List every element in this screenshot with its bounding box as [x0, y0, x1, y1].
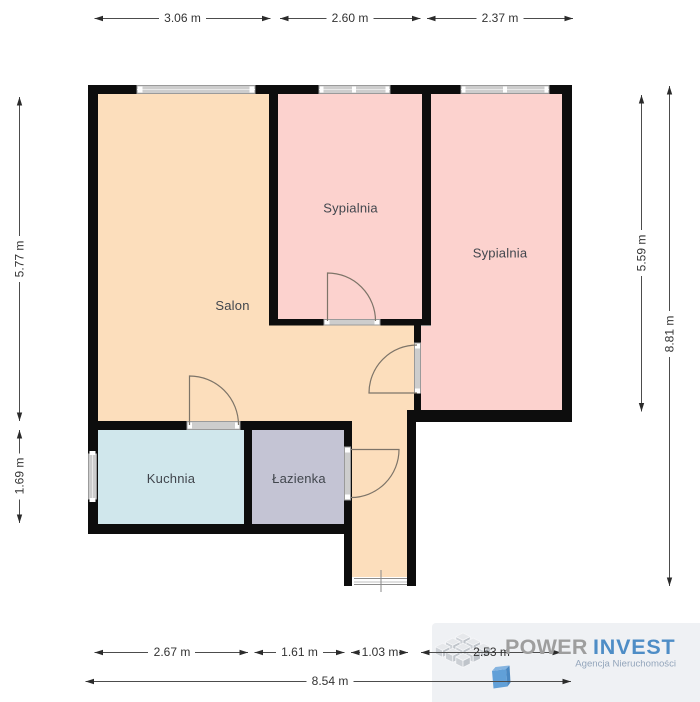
svg-text:3.06 m: 3.06 m: [164, 11, 201, 25]
svg-text:Agencja Nieruchomości: Agencja Nieruchomości: [575, 659, 676, 670]
svg-text:2.67 m: 2.67 m: [154, 645, 191, 659]
svg-text:2.60 m: 2.60 m: [332, 11, 369, 25]
svg-text:8.54 m: 8.54 m: [312, 674, 349, 688]
svg-text:1.69 m: 1.69 m: [13, 458, 27, 495]
svg-text:Kuchnia: Kuchnia: [147, 471, 196, 486]
svg-text:POWER: POWER: [505, 635, 588, 659]
svg-text:Sypialnia: Sypialnia: [323, 201, 378, 216]
svg-text:5.77 m: 5.77 m: [13, 241, 27, 278]
svg-text:5.59 m: 5.59 m: [635, 235, 649, 272]
svg-text:1.03 m: 1.03 m: [362, 645, 399, 659]
svg-text:1.61 m: 1.61 m: [281, 645, 318, 659]
svg-text:2.37 m: 2.37 m: [482, 11, 519, 25]
svg-text:8.81 m: 8.81 m: [663, 316, 677, 353]
svg-text:Salon: Salon: [215, 298, 249, 313]
svg-text:INVEST: INVEST: [593, 635, 675, 659]
svg-text:Sypialnia: Sypialnia: [473, 246, 528, 261]
svg-text:Łazienka: Łazienka: [272, 471, 326, 486]
